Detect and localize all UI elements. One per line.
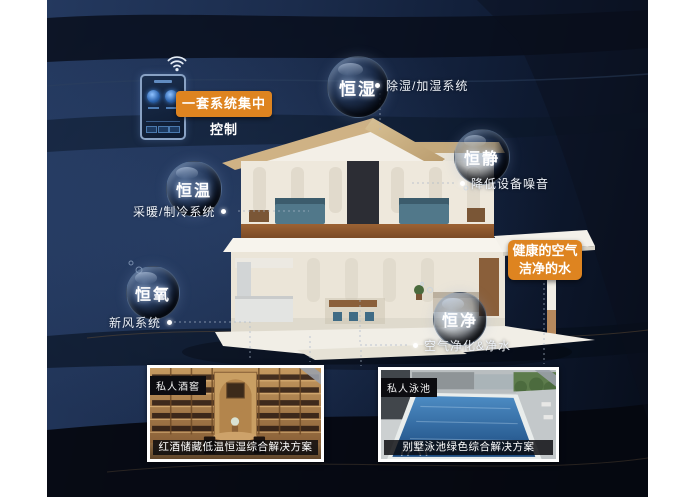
healthy-air-water-label: 健康的空气 洁净的水	[508, 240, 582, 280]
central-control-label: 一套系统集中控制	[176, 91, 272, 117]
system-label-text: 新风系统	[109, 314, 161, 331]
knob-readout	[148, 107, 159, 109]
system-label-text: 除湿/加湿系统	[386, 77, 468, 94]
pool-card: 私人泳池 别墅泳池绿色综合解决方案	[378, 367, 559, 462]
healthy-air-line: 健康的空气	[508, 242, 582, 260]
panel-title-bar	[154, 80, 172, 83]
wine-cellar-caption: 红酒储藏低温恒湿综合解决方案	[153, 440, 318, 455]
bubble-label: 恒净	[442, 307, 478, 331]
clean-water-line: 洁净的水	[508, 260, 582, 278]
connector-dot	[413, 343, 418, 348]
bubble-label: 恒温	[176, 177, 212, 201]
bubble-label: 恒湿	[339, 75, 377, 100]
panel-divider	[146, 121, 180, 122]
label-fresh-air-system: 新风系统	[109, 315, 172, 329]
bubble-label: 恒静	[464, 145, 500, 169]
control-knob-icon	[147, 90, 160, 103]
smart-home-infographic-page: 一套系统集中控制 健康的空气 洁净的水 恒湿 恒静 恒温 恒氧 恒净 除湿/加湿…	[0, 0, 700, 497]
pool-tag: 私人泳池	[381, 378, 437, 397]
panel-buttons	[146, 126, 180, 133]
system-label-text: 采暖/制冷系统	[133, 203, 215, 220]
label-dehumidify-humidify-system: 除湿/加湿系统	[375, 78, 468, 92]
system-label-text: 降低设备噪音	[471, 175, 549, 192]
connector-dot	[460, 181, 465, 186]
label-air-water-purification: 空气净化&净水	[413, 338, 511, 352]
wine-cellar-card: 私人酒窖 红酒储藏低温恒湿综合解决方案	[147, 365, 324, 462]
label-heating-cooling-system: 采暖/制冷系统	[133, 204, 226, 218]
bubble-label: 恒氧	[135, 281, 171, 305]
wifi-icon	[165, 55, 189, 73]
connector-dot	[375, 83, 380, 88]
label-noise-reduction: 降低设备噪音	[460, 176, 549, 190]
infographic-canvas: 一套系统集中控制 健康的空气 洁净的水 恒湿 恒静 恒温 恒氧 恒净 除湿/加湿…	[47, 0, 648, 497]
system-label-text: 空气净化&净水	[424, 337, 511, 354]
connector-dot	[167, 320, 172, 325]
bubble-constant-oxygen: 恒氧	[126, 266, 180, 320]
connector-dot	[221, 209, 226, 214]
wine-cellar-tag: 私人酒窖	[150, 376, 206, 395]
pool-caption: 别墅泳池绿色综合解决方案	[384, 440, 553, 455]
